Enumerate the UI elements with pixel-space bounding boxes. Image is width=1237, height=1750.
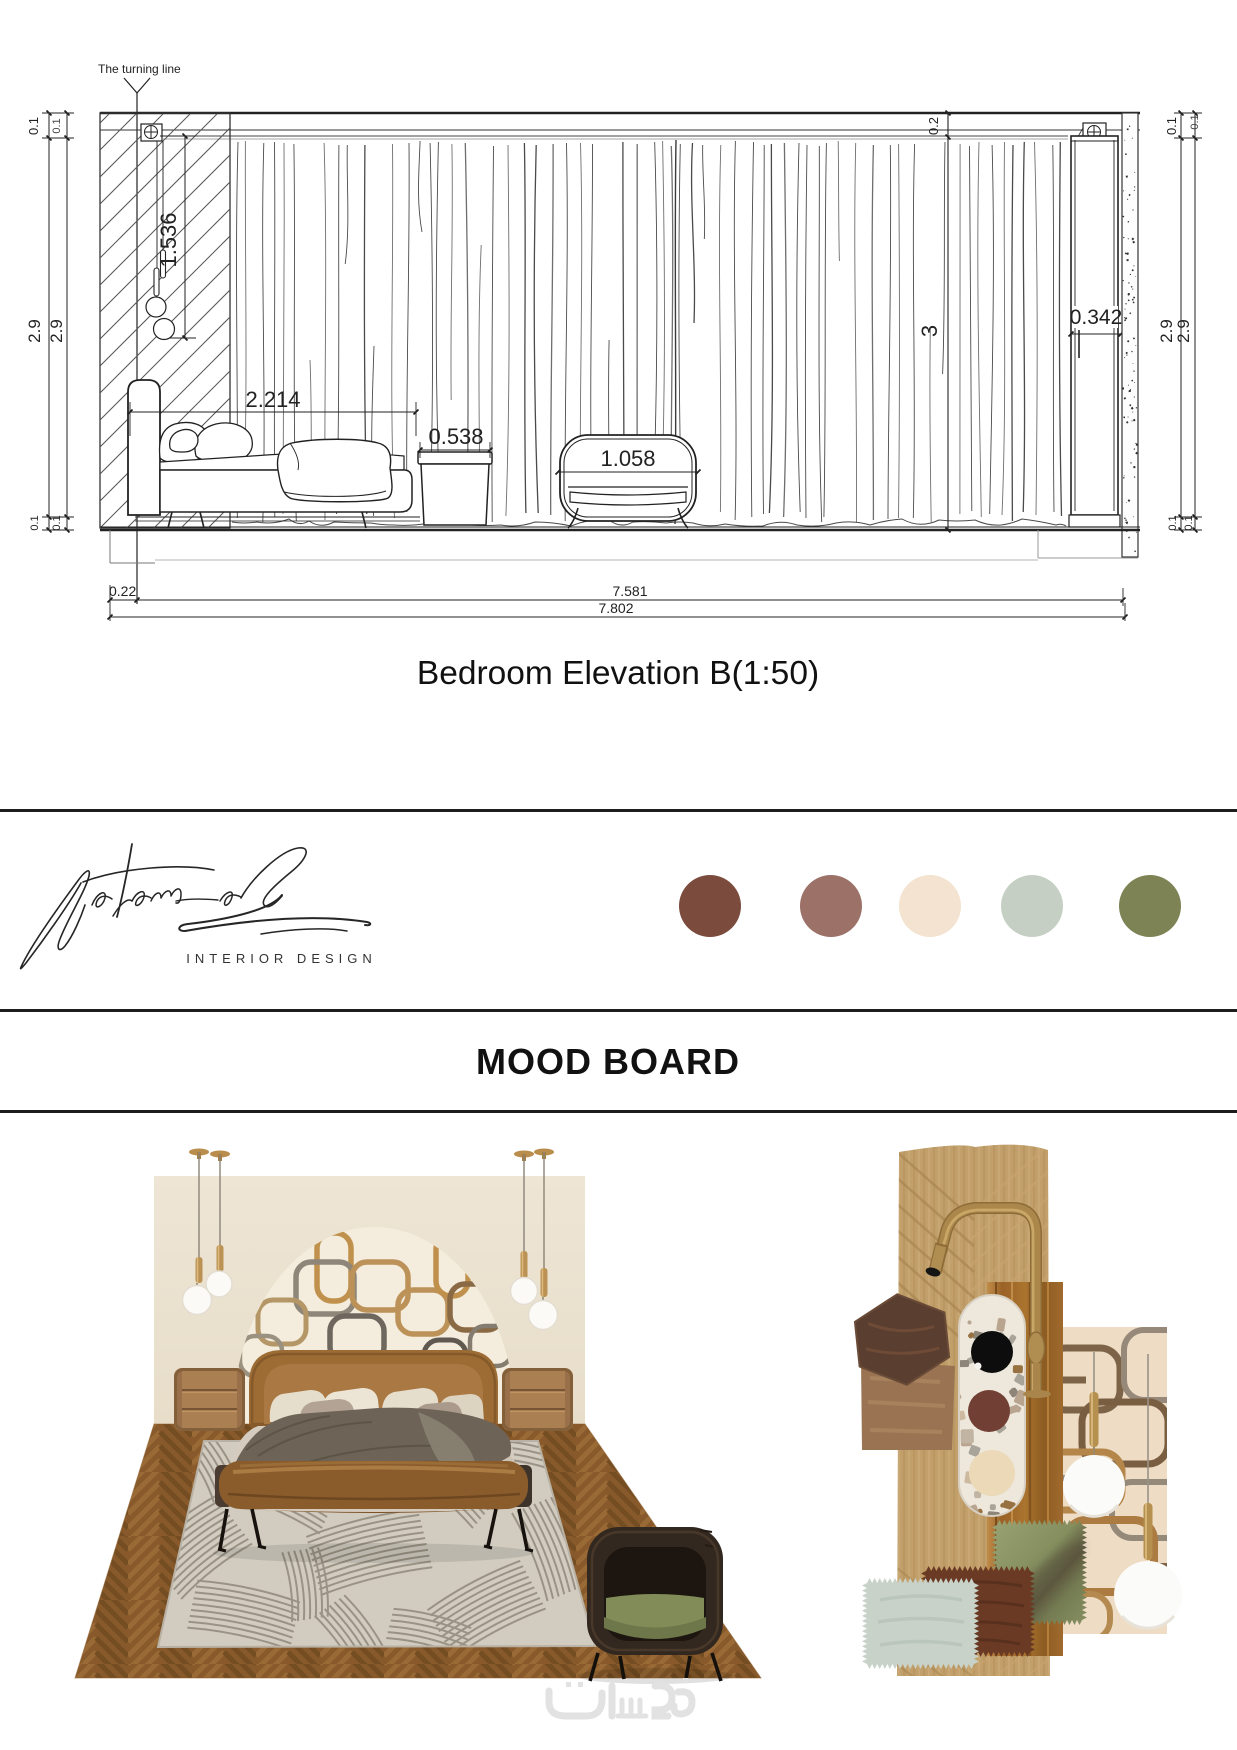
svg-text:0.22: 0.22 — [109, 583, 136, 599]
svg-text:7.802: 7.802 — [598, 600, 633, 616]
svg-text:The turning line: The turning line — [98, 62, 181, 76]
svg-text:Bedroom Elevation B(1:50): Bedroom Elevation B(1:50) — [417, 655, 819, 692]
svg-text:0.342: 0.342 — [1070, 306, 1123, 329]
svg-text:0.538: 0.538 — [428, 424, 483, 449]
svg-text:1.058: 1.058 — [600, 446, 655, 471]
svg-text:0.2: 0.2 — [926, 117, 941, 135]
svg-text:0.1: 0.1 — [1164, 117, 1179, 135]
svg-text:1.536: 1.536 — [156, 212, 181, 267]
svg-text:3: 3 — [917, 325, 942, 337]
svg-text:2.9: 2.9 — [1174, 319, 1193, 343]
svg-text:0.1: 0.1 — [1183, 515, 1195, 530]
svg-text:2.9: 2.9 — [25, 319, 44, 343]
svg-text:0.1: 0.1 — [29, 515, 41, 530]
svg-text:0.1: 0.1 — [1189, 114, 1201, 129]
svg-text:0.1: 0.1 — [26, 117, 41, 135]
svg-text:7.581: 7.581 — [612, 583, 647, 599]
svg-text:0.1: 0.1 — [1167, 515, 1179, 530]
svg-text:2.214: 2.214 — [245, 387, 300, 412]
svg-text:0.1: 0.1 — [51, 515, 63, 530]
svg-text:0.1: 0.1 — [51, 118, 63, 133]
svg-text:2.9: 2.9 — [47, 319, 66, 343]
